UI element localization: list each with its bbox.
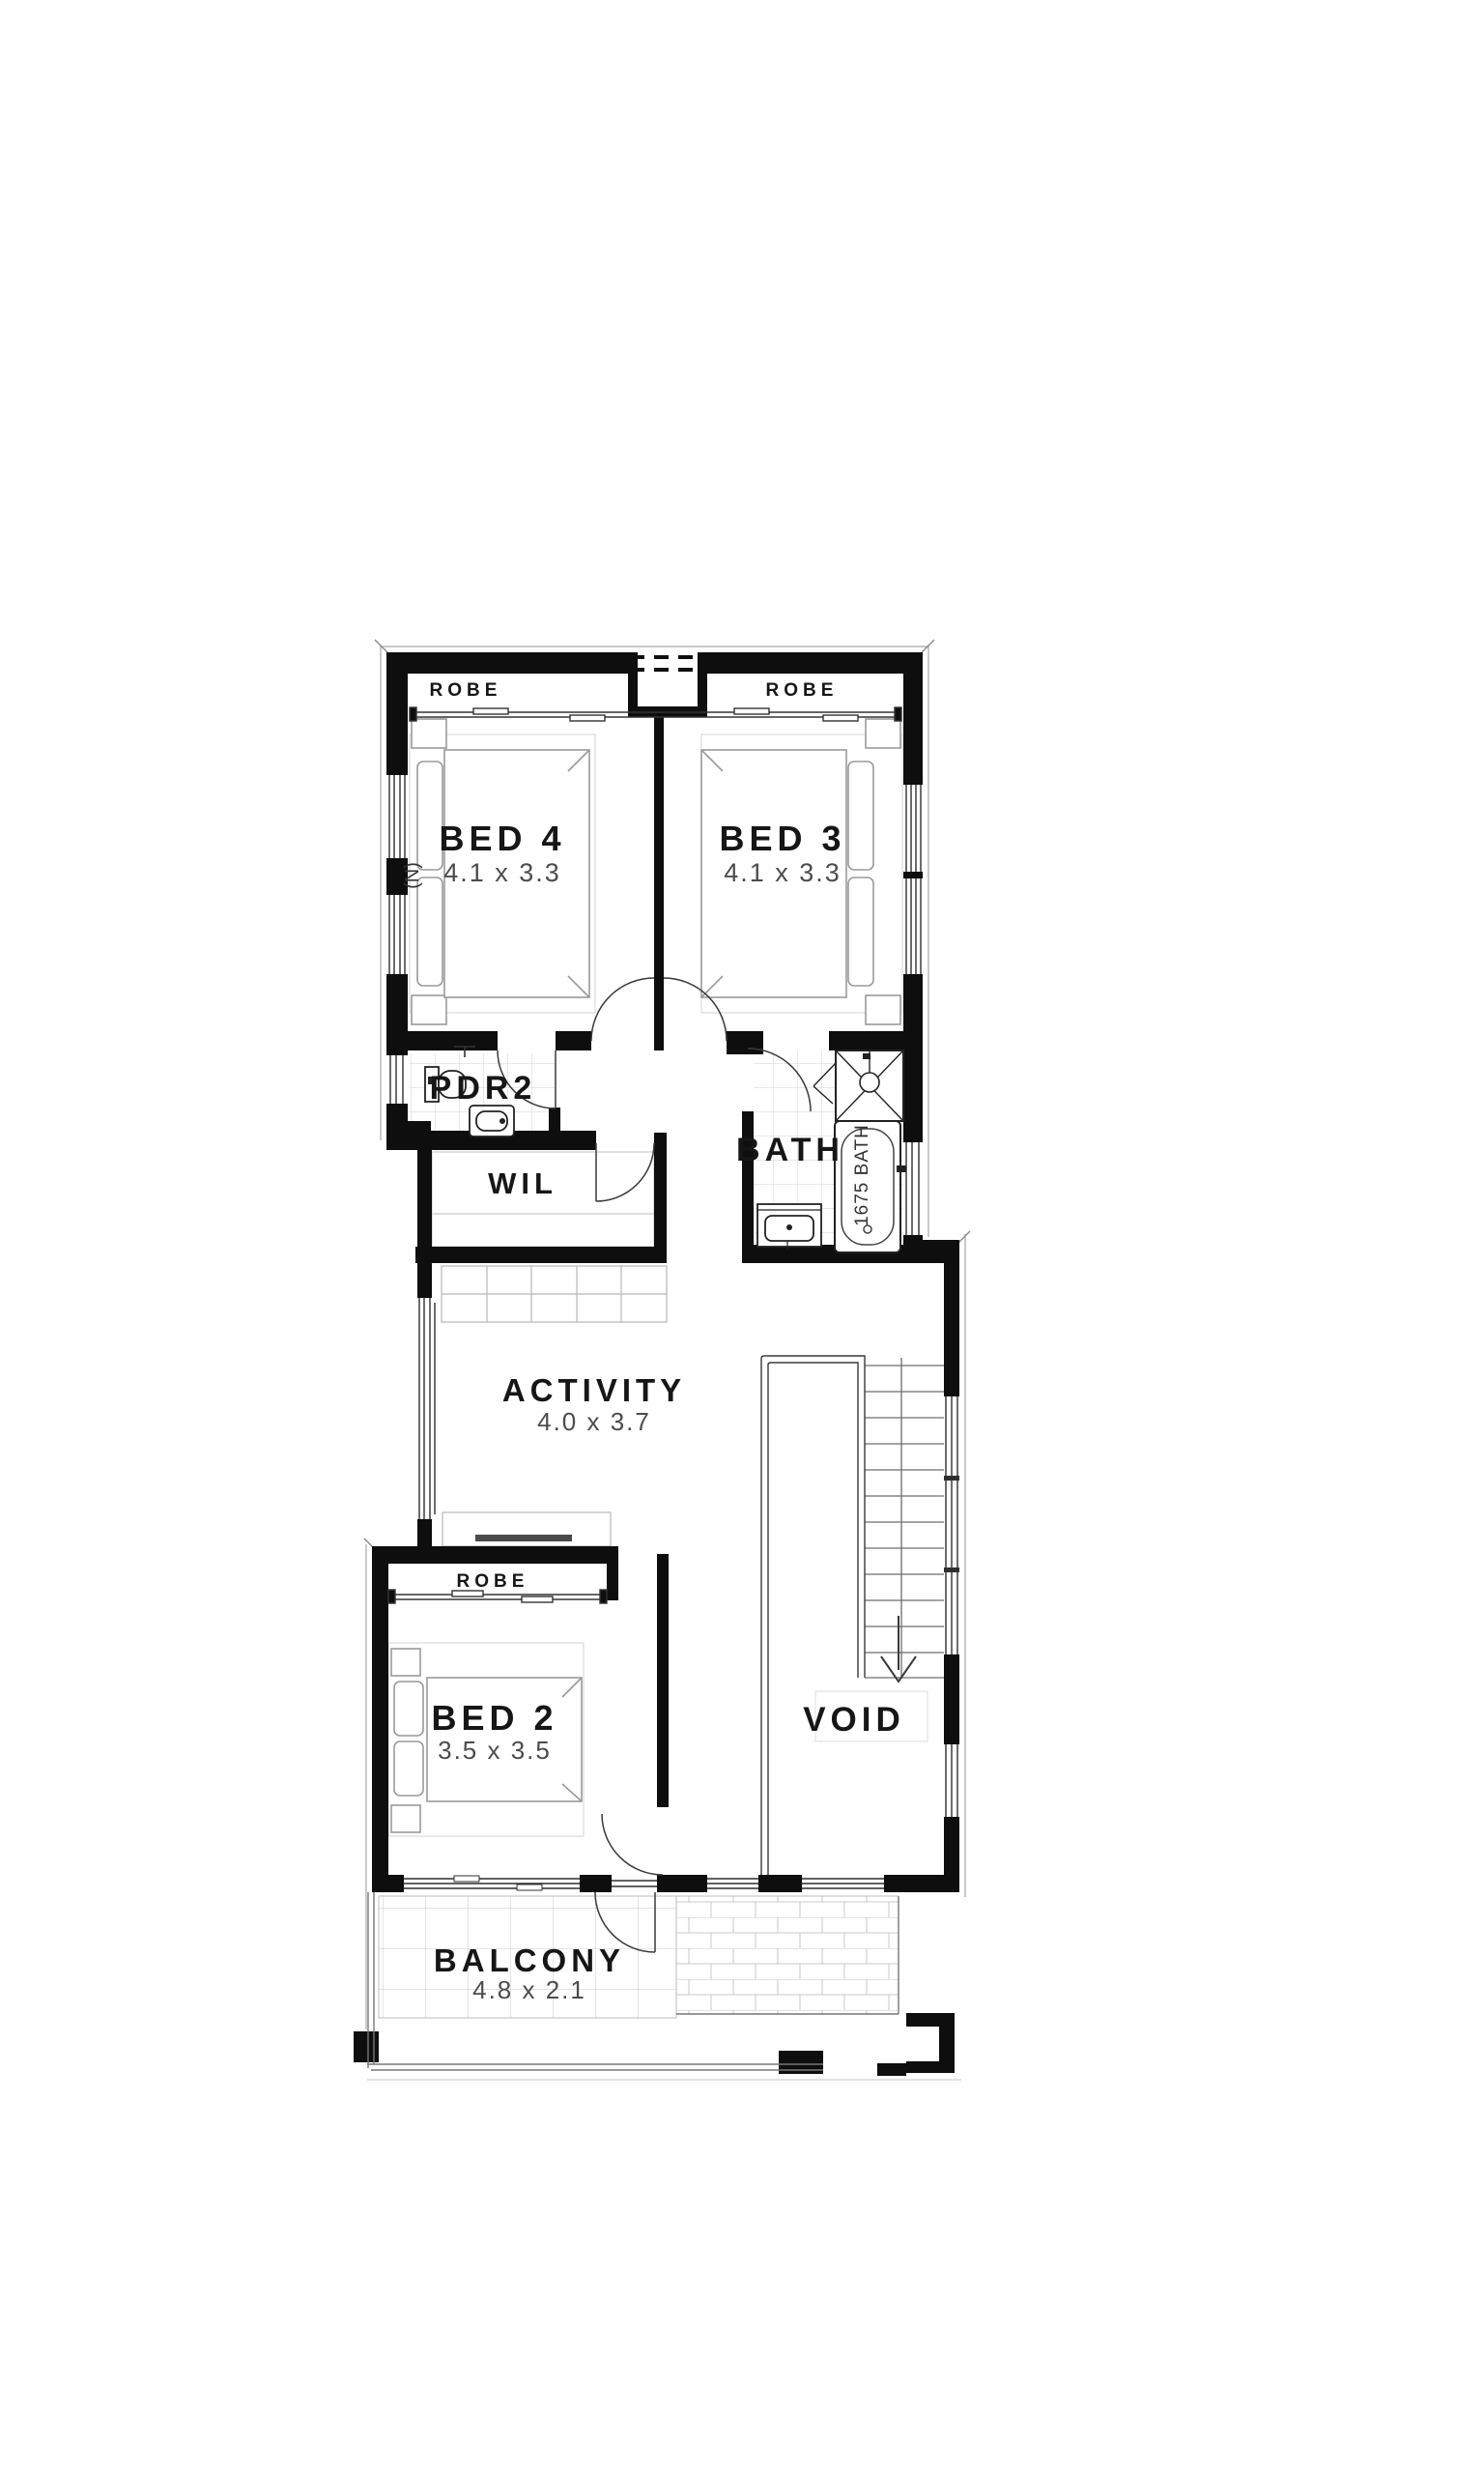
bed3-label: BED 3 <box>719 819 845 858</box>
north-marker: (N) <box>402 862 423 889</box>
pdr2-label: PDR2 <box>430 1070 537 1107</box>
bed2-dims: 3.5 x 3.5 <box>438 1736 552 1765</box>
bed4-label: BED 4 <box>439 819 565 858</box>
pdr2-basin-icon <box>470 1106 514 1136</box>
bed4-dims: 4.1 x 3.3 <box>443 858 561 887</box>
activity-dims: 4.0 x 3.7 <box>537 1407 651 1436</box>
robe-bed2-label: ROBE <box>457 1571 529 1592</box>
balcony-label: BALCONY <box>434 1942 625 1978</box>
bath-vanity-icon <box>757 1204 821 1250</box>
robe-bed3-label: ROBE <box>766 680 839 701</box>
activity-label: ACTIVITY <box>502 1372 686 1408</box>
bathtub-size-label: 1675 BATH <box>852 1124 872 1226</box>
robe-bed4-label: ROBE <box>430 680 502 701</box>
bed2-label: BED 2 <box>431 1698 557 1738</box>
void-label: VOID <box>803 1701 905 1739</box>
bed3-dims: 4.1 x 3.3 <box>724 858 842 887</box>
balcony-dims: 4.8 x 2.1 <box>472 1975 586 2004</box>
paved-roof-area <box>676 1896 899 2014</box>
wil-label: WIL <box>488 1166 557 1200</box>
floorplan-page: BED 4 4.1 x 3.3 BED 3 4.1 x 3.3 PDR2 WIL… <box>0 0 1484 2474</box>
floorplan-drawing: BED 4 4.1 x 3.3 BED 3 4.1 x 3.3 PDR2 WIL… <box>0 0 1484 2474</box>
pier-opening <box>906 2027 939 2061</box>
bath-label: BATH <box>736 1132 844 1168</box>
